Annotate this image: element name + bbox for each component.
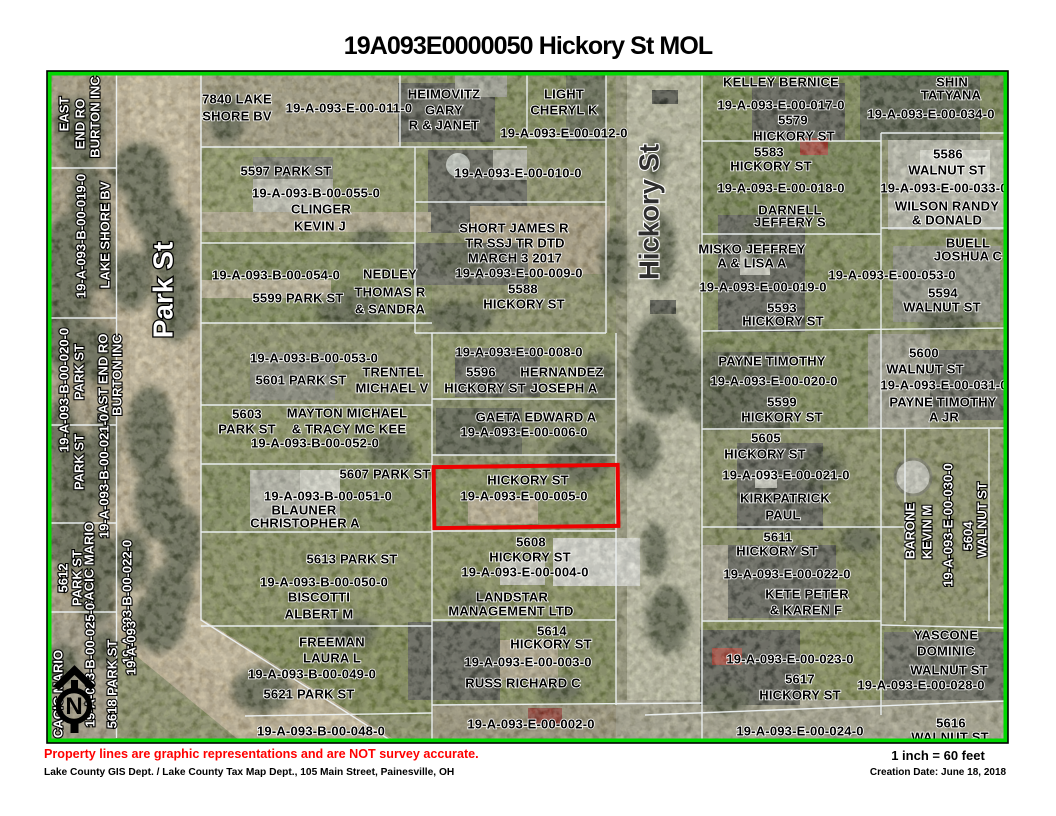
svg-text:BURTON INC: BURTON INC	[110, 334, 125, 416]
svg-text:WALNUT ST: WALNUT ST	[910, 663, 988, 678]
svg-text:BARONE: BARONE	[903, 503, 918, 560]
svg-text:R & JANET: R & JANET	[409, 118, 479, 133]
svg-text:JOSEPH A: JOSEPH A	[531, 381, 598, 396]
svg-text:HICKORY ST: HICKORY ST	[724, 447, 805, 462]
svg-text:HICKORY ST: HICKORY ST	[753, 129, 834, 144]
svg-text:19-A-093-B-00-055-0: 19-A-093-B-00-055-0	[252, 186, 380, 201]
svg-text:5616: 5616	[936, 716, 966, 731]
svg-text:5605: 5605	[751, 431, 781, 446]
svg-text:5579: 5579	[778, 113, 808, 128]
svg-text:19-A-093-B-00-021-0: 19-A-093-B-00-021-0	[97, 414, 112, 538]
svg-text:19-A-093-E-00-006-0: 19-A-093-E-00-006-0	[460, 425, 587, 440]
svg-text:5611: 5611	[763, 530, 792, 545]
svg-text:19-A-093-E-00-002-0: 19-A-093-E-00-002-0	[467, 717, 594, 732]
svg-text:5596: 5596	[466, 365, 496, 380]
svg-text:1 inch = 60 feet: 1 inch = 60 feet	[891, 748, 985, 763]
svg-text:GAETA EDWARD A: GAETA EDWARD A	[476, 410, 597, 425]
svg-text:NEDLEY: NEDLEY	[363, 267, 417, 282]
svg-text:KEVIN M: KEVIN M	[920, 505, 935, 559]
svg-text:WILSON RANDY: WILSON RANDY	[895, 199, 999, 214]
svg-text:5583: 5583	[754, 145, 784, 160]
svg-text:WALNUT ST: WALNUT ST	[903, 300, 981, 315]
svg-text:HEIMOVITZ: HEIMOVITZ	[408, 87, 481, 102]
svg-text:& SANDRA: & SANDRA	[355, 302, 426, 317]
svg-text:A JR: A JR	[929, 410, 959, 425]
svg-text:& KAREN F: & KAREN F	[770, 603, 843, 618]
svg-text:A & LISA A: A & LISA A	[717, 256, 787, 271]
svg-text:LAURA L: LAURA L	[303, 651, 361, 666]
svg-text:19-A-093-E-00-022-0: 19-A-093-E-00-022-0	[723, 567, 850, 582]
svg-text:N: N	[65, 693, 82, 720]
svg-text:HICKORY ST: HICKORY ST	[741, 410, 822, 425]
svg-text:DOMINIC: DOMINIC	[917, 644, 975, 659]
svg-text:PAUL: PAUL	[765, 508, 800, 523]
svg-text:HICKORY ST: HICKORY ST	[736, 544, 817, 559]
svg-text:19-A-093-E-00-011-0: 19-A-093-E-00-011-0	[286, 101, 413, 116]
svg-text:LIGHT: LIGHT	[544, 87, 584, 102]
svg-text:5603: 5603	[232, 407, 262, 422]
svg-text:CHERYL K: CHERYL K	[530, 103, 598, 118]
svg-text:19-A-093-B-00-050-0: 19-A-093-B-00-050-0	[260, 575, 388, 590]
svg-text:MARCH 3 2017: MARCH 3 2017	[468, 251, 562, 266]
svg-text:19-A-093-E-00-031-0: 19-A-093-E-00-031-0	[880, 378, 1007, 393]
svg-text:5586: 5586	[933, 147, 963, 162]
svg-text:HICKORY ST: HICKORY ST	[759, 688, 840, 703]
svg-text:7840 LAKE: 7840 LAKE	[202, 92, 272, 107]
svg-text:SHORE BV: SHORE BV	[202, 109, 272, 124]
svg-text:Hickory St: Hickory St	[634, 144, 665, 280]
svg-text:YASCONE: YASCONE	[914, 628, 979, 643]
svg-text:CACIC MARIO: CACIC MARIO	[82, 522, 97, 610]
svg-text:19-A-093-E-00-023-0: 19-A-093-E-00-023-0	[726, 652, 853, 667]
svg-text:19-A-093-E-00-021-0: 19-A-093-E-00-021-0	[722, 468, 849, 483]
svg-text:MAYTON MICHAEL: MAYTON MICHAEL	[287, 406, 408, 421]
svg-text:BISCOTTI: BISCOTTI	[288, 590, 350, 605]
svg-text:19-A-093-E-00-030-0: 19-A-093-E-00-030-0	[941, 463, 956, 587]
svg-text:19-A-093-E-00-010-0: 19-A-093-E-00-010-0	[454, 166, 581, 181]
svg-text:CLINGER: CLINGER	[291, 202, 351, 217]
svg-text:19-A-093-E-00-008-0: 19-A-093-E-00-008-0	[455, 345, 582, 360]
svg-text:& DONALD: & DONALD	[912, 213, 982, 228]
svg-text:MANAGEMENT LTD: MANAGEMENT LTD	[448, 604, 573, 619]
svg-text:HICKORY ST: HICKORY ST	[510, 637, 591, 652]
svg-text:5613 PARK ST: 5613 PARK ST	[306, 552, 397, 567]
svg-text:MICHAEL V: MICHAEL V	[355, 381, 428, 396]
svg-text:5612: 5612	[56, 564, 71, 593]
svg-text:19-A-093-B-00-019-0: 19-A-093-B-00-019-0	[74, 174, 89, 298]
svg-text:KIRKPATRICK: KIRKPATRICK	[740, 491, 830, 506]
svg-text:WALNUT ST: WALNUT ST	[908, 163, 986, 178]
svg-text:19-A-093-E-00-005-0: 19-A-093-E-00-005-0	[460, 489, 587, 504]
svg-text:19-A-093-E-00-019-0: 19-A-093-E-00-019-0	[699, 280, 826, 295]
svg-text:RUSS RICHARD C: RUSS RICHARD C	[465, 676, 581, 691]
svg-text:END RO: END RO	[73, 99, 88, 150]
svg-text:19-A-093-E-00-018-0: 19-A-093-E-00-018-0	[717, 181, 844, 196]
svg-text:KETE PETER: KETE PETER	[765, 587, 849, 602]
svg-text:19-A-093-E-00-004-0: 19-A-093-E-00-004-0	[461, 565, 588, 580]
svg-text:KEVIN J: KEVIN J	[294, 219, 346, 234]
svg-text:PARK ST: PARK ST	[72, 434, 87, 490]
svg-text:SHORT JAMES R: SHORT JAMES R	[459, 221, 569, 236]
svg-text:PARK ST: PARK ST	[218, 422, 276, 437]
svg-text:19-A-093-E-00-053-0: 19-A-093-E-00-053-0	[828, 268, 955, 283]
svg-text:5618 PARK ST: 5618 PARK ST	[105, 640, 120, 729]
svg-text:5608: 5608	[516, 535, 546, 550]
svg-text:PAYNE TIMOTHY: PAYNE TIMOTHY	[718, 354, 825, 369]
svg-text:19-A-093-B-00-053-0: 19-A-093-B-00-053-0	[250, 351, 378, 366]
svg-text:HICKORY ST: HICKORY ST	[489, 550, 570, 565]
svg-text:THOMAS R: THOMAS R	[355, 285, 426, 300]
svg-text:5601 PARK ST: 5601 PARK ST	[255, 373, 346, 388]
svg-text:Park St: Park St	[148, 242, 179, 339]
svg-text:5588: 5588	[508, 282, 538, 297]
svg-text:JEFFERY S: JEFFERY S	[754, 215, 826, 230]
svg-text:TRENTEL: TRENTEL	[362, 365, 423, 380]
svg-text:Lake County GIS Dept. / Lake C: Lake County GIS Dept. / Lake County Tax …	[44, 767, 454, 778]
svg-text:19-A-093-E-00-020-0: 19-A-093-E-00-020-0	[710, 374, 837, 389]
svg-text:BURTON INC: BURTON INC	[88, 76, 103, 158]
svg-text:5599: 5599	[767, 395, 797, 410]
svg-text:19-A-093-B-00-048-0: 19-A-093-B-00-048-0	[257, 724, 385, 739]
svg-text:19-A-093-E-00-034-0: 19-A-093-E-00-034-0	[867, 107, 994, 122]
svg-text:PARK ST: PARK ST	[72, 344, 87, 400]
svg-text:& TRACY MC KEE: & TRACY MC KEE	[292, 422, 407, 437]
svg-text:LAKE SHORE BV: LAKE SHORE BV	[98, 181, 113, 288]
svg-text:5604: 5604	[961, 521, 976, 551]
svg-text:5597 PARK ST: 5597 PARK ST	[240, 164, 331, 179]
svg-text:Property lines are graphic rep: Property lines are graphic representatio…	[44, 747, 479, 761]
svg-text:19-A-093-E-00-024-0: 19-A-093-E-00-024-0	[736, 724, 863, 739]
svg-text:19-A-093-B-00-054-0: 19-A-093-B-00-054-0	[212, 268, 340, 283]
svg-text:FREEMAN: FREEMAN	[299, 635, 365, 650]
svg-text:KELLEY BERNICE: KELLEY BERNICE	[723, 75, 839, 90]
svg-text:19-A-093-E-00-012-0: 19-A-093-E-00-012-0	[500, 126, 627, 141]
svg-text:19A093E0000050 Hickory St MOL: 19A093E0000050 Hickory St MOL	[344, 32, 713, 60]
svg-text:5594: 5594	[928, 286, 958, 301]
svg-text:JOSHUA C: JOSHUA C	[934, 249, 1003, 264]
svg-text:19-A-093-B-00-052-0: 19-A-093-B-00-052-0	[251, 436, 379, 451]
svg-text:TATYANA: TATYANA	[921, 88, 982, 103]
svg-text:EAST: EAST	[57, 97, 72, 132]
svg-text:TR SSJ TR DTD: TR SSJ TR DTD	[465, 236, 564, 251]
svg-text:HERNANDEZ: HERNANDEZ	[520, 365, 603, 380]
svg-text:19-A-093-E-00-028-0: 19-A-093-E-00-028-0	[857, 678, 984, 693]
svg-text:19-A-093: 19-A-093	[124, 621, 139, 675]
svg-text:CHRISTOPHER A: CHRISTOPHER A	[250, 516, 360, 531]
svg-text:19-A-093-B-00-049-0: 19-A-093-B-00-049-0	[248, 667, 376, 682]
svg-text:WALNUT ST: WALNUT ST	[975, 482, 990, 558]
svg-text:5621 PARK ST: 5621 PARK ST	[263, 687, 354, 702]
svg-text:5600: 5600	[909, 346, 939, 361]
svg-text:19-A-093-E-00-009-0: 19-A-093-E-00-009-0	[455, 266, 582, 281]
svg-text:GARY: GARY	[425, 103, 463, 118]
svg-text:19-A-093-E-00-033-0: 19-A-093-E-00-033-0	[880, 181, 1007, 196]
svg-text:MISKO JEFFREY: MISKO JEFFREY	[698, 242, 805, 257]
svg-text:5599 PARK ST: 5599 PARK ST	[252, 291, 343, 306]
svg-text:5617: 5617	[785, 672, 815, 687]
svg-text:19-A-093-B-00-051-0: 19-A-093-B-00-051-0	[264, 489, 392, 504]
svg-text:HICKORY ST: HICKORY ST	[483, 297, 564, 312]
svg-text:Creation Date: June 18, 2018: Creation Date: June 18, 2018	[870, 767, 1007, 778]
svg-text:PAYNE TIMOTHY: PAYNE TIMOTHY	[889, 395, 996, 410]
svg-text:LANDSTAR: LANDSTAR	[476, 590, 549, 605]
svg-text:HICKORY ST: HICKORY ST	[444, 381, 525, 396]
svg-text:19-A-093-E-00-003-0: 19-A-093-E-00-003-0	[464, 655, 591, 670]
svg-text:HICKORY ST: HICKORY ST	[730, 159, 811, 174]
svg-text:HICKORY ST: HICKORY ST	[487, 473, 568, 488]
svg-text:HICKORY ST: HICKORY ST	[742, 314, 823, 329]
svg-text:5607 PARK ST: 5607 PARK ST	[339, 467, 430, 482]
svg-text:WALNUT ST: WALNUT ST	[886, 362, 964, 377]
svg-text:19-A-093-E-00-017-0: 19-A-093-E-00-017-0	[717, 98, 844, 113]
svg-text:19-A-093-B-00-020-0: 19-A-093-B-00-020-0	[57, 328, 72, 452]
svg-text:ALBERT M: ALBERT M	[285, 607, 354, 622]
svg-text:EAST END RO: EAST END RO	[96, 334, 111, 423]
